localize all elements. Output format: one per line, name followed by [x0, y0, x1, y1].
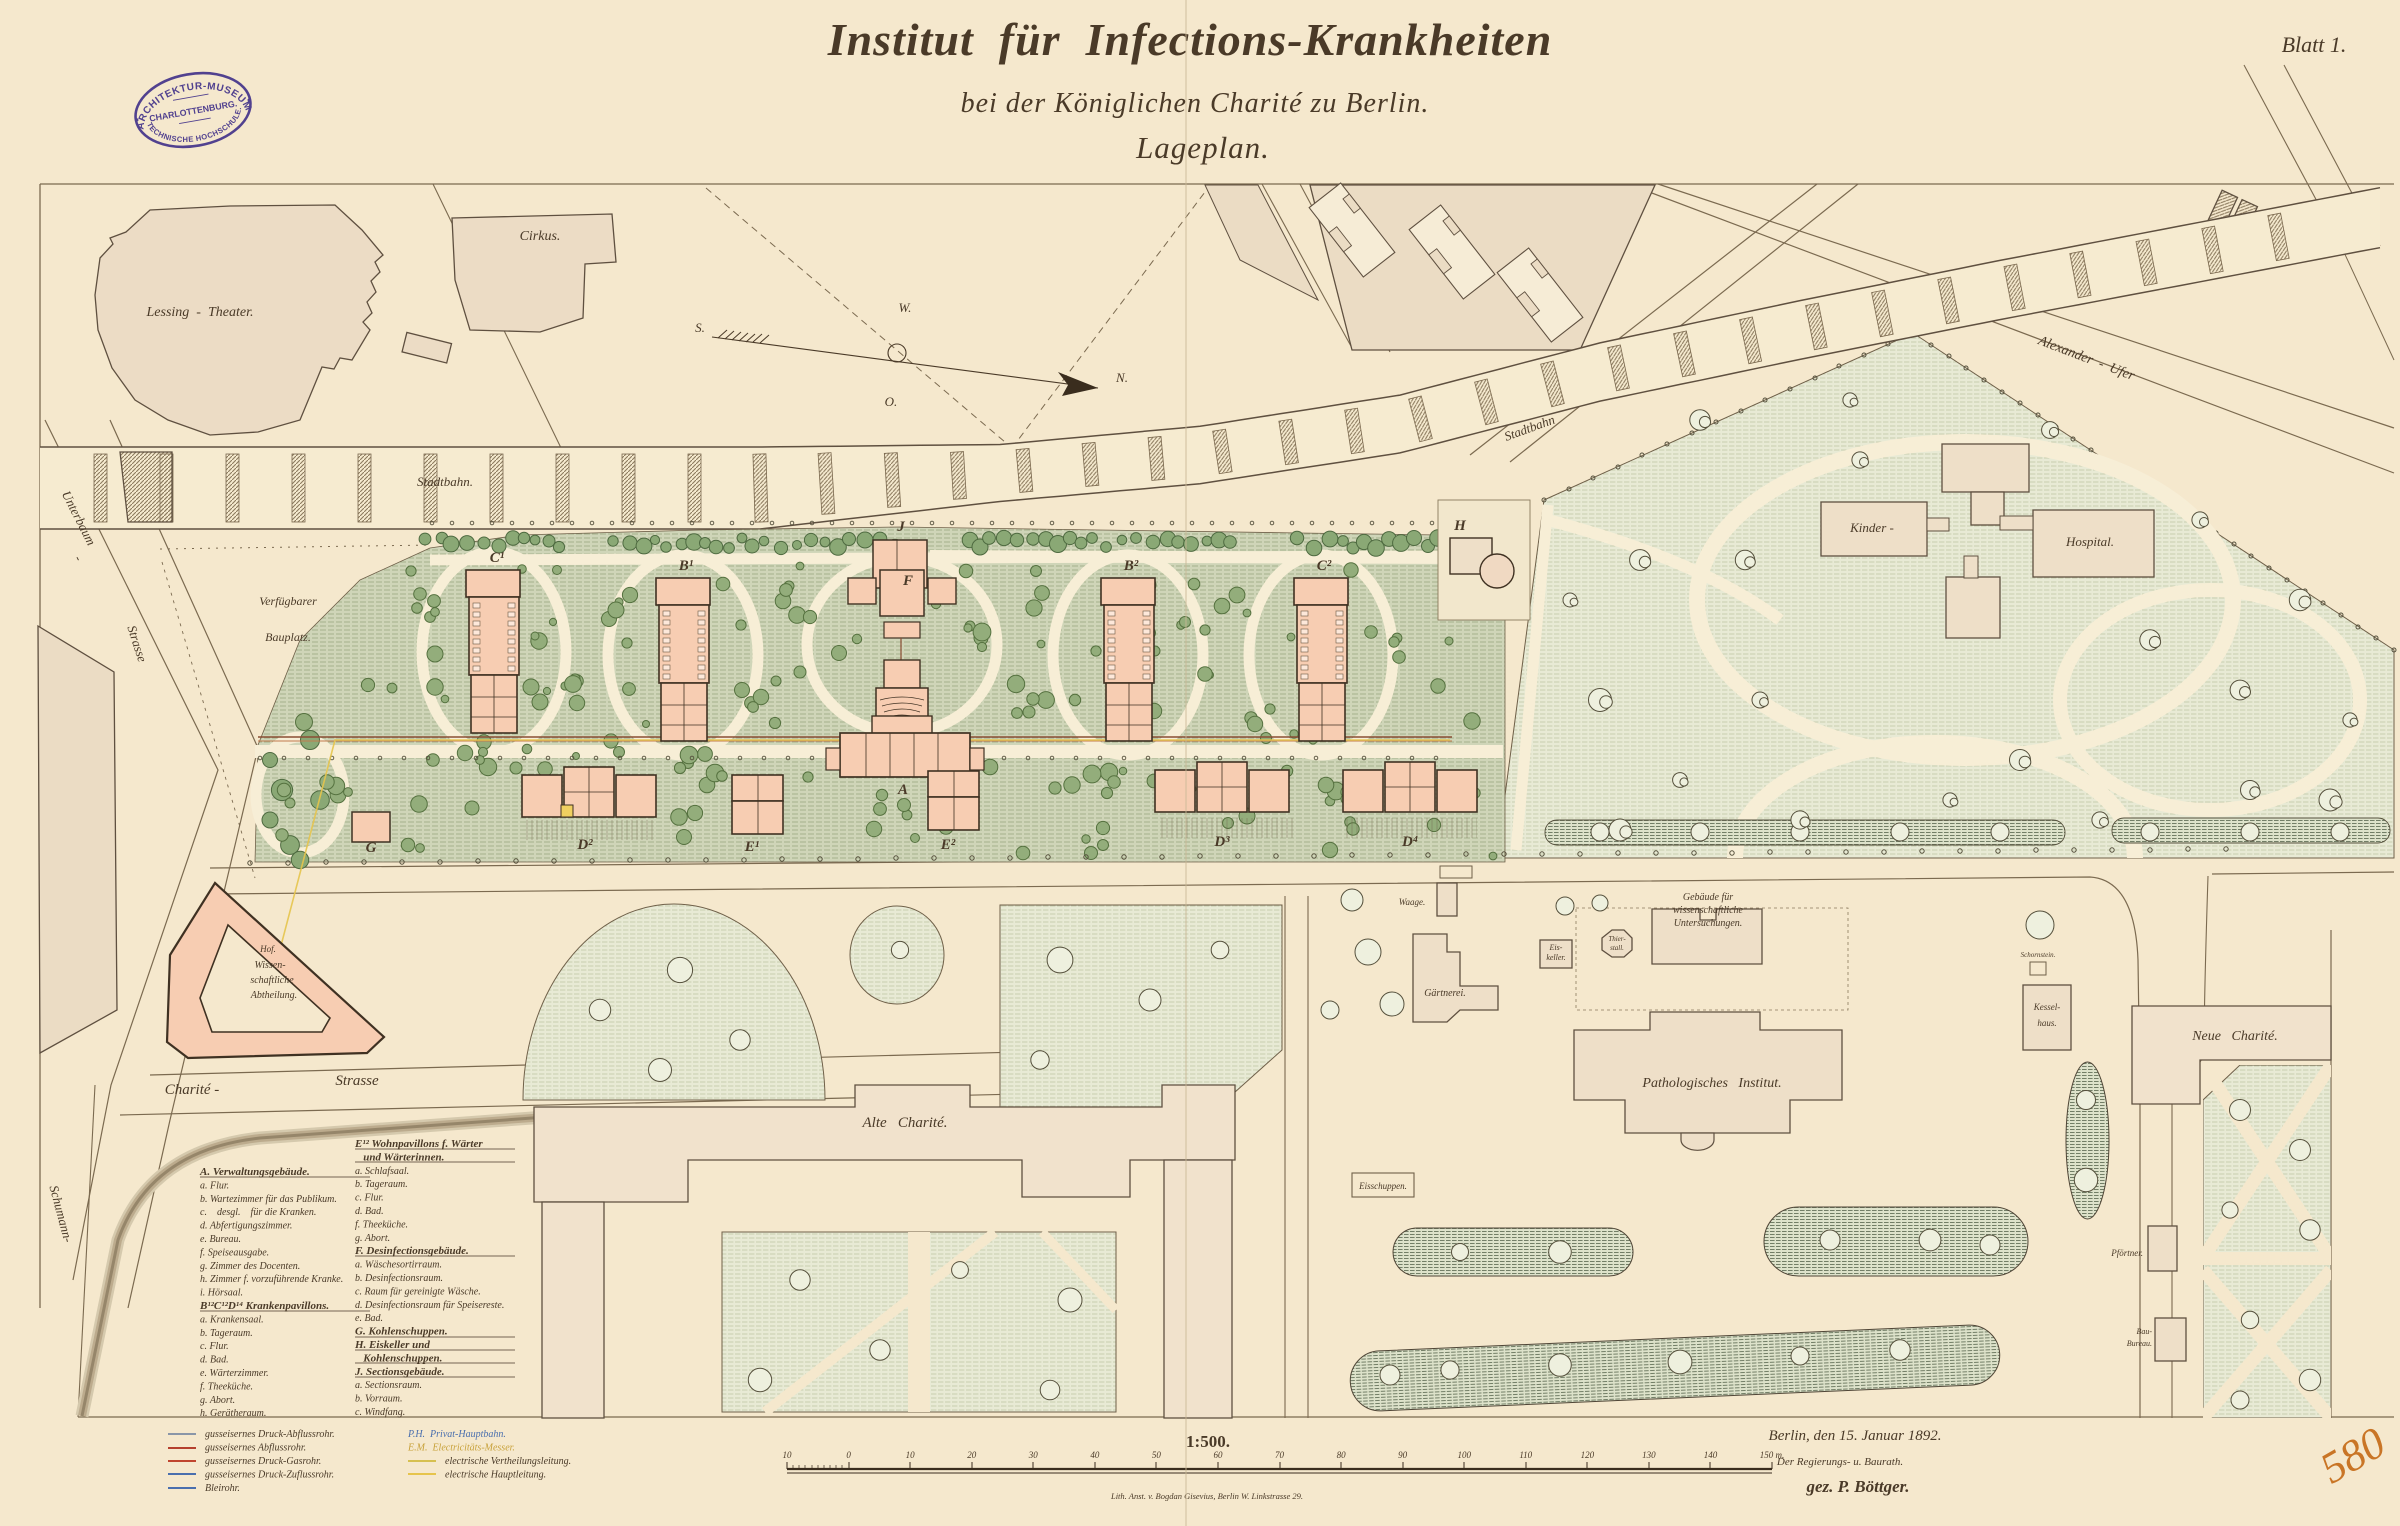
- svg-text:70: 70: [1275, 1450, 1285, 1460]
- svg-text:h. Gerätheraum.: h. Gerätheraum.: [200, 1408, 266, 1419]
- svg-text:30: 30: [1028, 1450, 1039, 1460]
- svg-text:gez. P. Böttger.: gez. P. Böttger.: [1805, 1477, 1909, 1496]
- svg-text:140: 140: [1704, 1450, 1718, 1460]
- svg-text:G. Kohlenschuppen.: G. Kohlenschuppen.: [355, 1326, 448, 1338]
- svg-text:Bureau.: Bureau.: [2127, 1339, 2152, 1348]
- svg-text:A. Verwaltungsgebäude.: A. Verwaltungsgebäude.: [199, 1166, 310, 1178]
- svg-text:Hospital.: Hospital.: [2065, 534, 2114, 549]
- svg-text:Cirkus.: Cirkus.: [520, 229, 561, 244]
- svg-text:C¹: C¹: [490, 550, 505, 566]
- svg-text:G: G: [366, 840, 377, 856]
- svg-text:Lageplan.: Lageplan.: [1135, 130, 1270, 165]
- svg-text:b. Wartezimmer für das Publiku: b. Wartezimmer für das Publikum.: [200, 1194, 337, 1205]
- svg-text:electrische Hauptleitung.: electrische Hauptleitung.: [445, 1470, 546, 1481]
- svg-text:Abtheilung.: Abtheilung.: [250, 990, 297, 1001]
- svg-text:wissenschaftliche: wissenschaftliche: [1673, 905, 1744, 916]
- svg-text:Thier-: Thier-: [1608, 935, 1626, 943]
- svg-text:c. Flur.: c. Flur.: [200, 1341, 229, 1352]
- svg-text:Verfügbarer: Verfügbarer: [259, 594, 317, 608]
- svg-text:electrische Vertheilungsleitun: electrische Vertheilungsleitung.: [445, 1456, 571, 1467]
- svg-text:Gärtnerei.: Gärtnerei.: [1424, 988, 1466, 999]
- svg-text:130: 130: [1642, 1450, 1656, 1460]
- svg-text:B²: B²: [1123, 558, 1139, 574]
- svg-text:B¹²C¹²D¹⁴ Krankenpavillons.: B¹²C¹²D¹⁴ Krankenpavillons.: [199, 1300, 329, 1312]
- svg-text:90: 90: [1398, 1450, 1408, 1460]
- svg-text:Kohlenschuppen.: Kohlenschuppen.: [355, 1352, 442, 1364]
- svg-text:D³: D³: [1213, 834, 1230, 850]
- svg-text:b. Tageraum.: b. Tageraum.: [200, 1328, 253, 1339]
- svg-text:Neue Charité.: Neue Charité.: [2191, 1029, 2278, 1044]
- svg-text:100: 100: [1457, 1450, 1471, 1460]
- svg-text:stall.: stall.: [1610, 944, 1624, 952]
- svg-text:schaftliche: schaftliche: [250, 975, 294, 986]
- svg-text:50: 50: [1152, 1450, 1162, 1460]
- svg-text:f. Speiseausgabe.: f. Speiseausgabe.: [200, 1247, 269, 1258]
- svg-text:d. Abfertigungszimmer.: d. Abfertigungszimmer.: [200, 1221, 292, 1232]
- svg-text:B¹: B¹: [678, 558, 694, 574]
- svg-text:e. Bureau.: e. Bureau.: [200, 1234, 241, 1245]
- svg-text:1:500.: 1:500.: [1186, 1432, 1230, 1451]
- svg-text:60: 60: [1213, 1450, 1223, 1460]
- svg-text:0: 0: [846, 1450, 851, 1460]
- svg-text:Bau-: Bau-: [2136, 1327, 2152, 1336]
- svg-text:keller.: keller.: [1546, 953, 1565, 962]
- svg-text:A: A: [897, 782, 908, 798]
- svg-text:Pathologisches Institut.: Pathologisches Institut.: [1641, 1076, 1781, 1091]
- svg-text:Kinder -: Kinder -: [1849, 520, 1894, 535]
- svg-text:a. Flur.: a. Flur.: [200, 1180, 229, 1191]
- svg-text:a. Wäschesortirraum.: a. Wäschesortirraum.: [355, 1260, 442, 1271]
- svg-text:Pförtner.: Pförtner.: [2110, 1248, 2143, 1258]
- svg-text:Gebäude für: Gebäude für: [1683, 892, 1733, 903]
- svg-text:Waage.: Waage.: [1399, 897, 1425, 907]
- svg-text:a. Schlafsaal.: a. Schlafsaal.: [355, 1166, 409, 1177]
- svg-text:Bauplatz.: Bauplatz.: [265, 630, 311, 644]
- svg-text:a. Sectionsraum.: a. Sectionsraum.: [355, 1380, 422, 1391]
- svg-text:g. Zimmer des Docenten.: g. Zimmer des Docenten.: [200, 1261, 300, 1272]
- svg-text:f. Theeküche.: f. Theeküche.: [355, 1219, 408, 1230]
- svg-text:bei der Königlichen Charité zu: bei der Königlichen Charité zu Berlin.: [961, 88, 1430, 119]
- svg-text:Eisschuppen.: Eisschuppen.: [1358, 1181, 1407, 1191]
- svg-text:c. Flur.: c. Flur.: [355, 1193, 384, 1204]
- svg-text:c. Raum für gereinigte Wäsche.: c. Raum für gereinigte Wäsche.: [355, 1286, 481, 1297]
- svg-text:Charité -: Charité -: [165, 1082, 220, 1098]
- svg-text:Alte Charité.: Alte Charité.: [862, 1115, 948, 1131]
- svg-text:F: F: [902, 573, 913, 589]
- svg-text:10: 10: [783, 1450, 793, 1460]
- svg-text:D⁴: D⁴: [1401, 834, 1418, 850]
- svg-text:Lessing - Theater.: Lessing - Theater.: [146, 305, 254, 320]
- svg-text:f. Theeküche.: f. Theeküche.: [200, 1381, 253, 1392]
- svg-text:E.M. Electricitäts-Messer.: E.M. Electricitäts-Messer.: [407, 1443, 515, 1454]
- svg-text:g. Abort.: g. Abort.: [355, 1233, 390, 1244]
- svg-text:20: 20: [967, 1450, 977, 1460]
- svg-text:Bleirohr.: Bleirohr.: [205, 1483, 240, 1494]
- svg-text:g. Abort.: g. Abort.: [200, 1395, 235, 1406]
- svg-text:gusseisernes Abflussrohr.: gusseisernes Abflussrohr.: [205, 1443, 306, 1454]
- svg-text:gusseisernes Druck-Abflussrohr: gusseisernes Druck-Abflussrohr.: [205, 1429, 335, 1440]
- svg-text:D²: D²: [576, 837, 593, 853]
- svg-text:W.: W.: [899, 300, 912, 315]
- svg-text:Untersuchungen.: Untersuchungen.: [1674, 918, 1743, 929]
- svg-text:Blatt 1.: Blatt 1.: [2282, 32, 2347, 57]
- svg-text:Schornstein.: Schornstein.: [2021, 951, 2056, 959]
- svg-text:Stadtbahn.: Stadtbahn.: [417, 474, 473, 489]
- svg-text:e. Bad.: e. Bad.: [355, 1313, 383, 1324]
- svg-text:Institut für Infections-Kran: Institut für Infections-Krankheiten: [827, 14, 1553, 65]
- svg-text:d. Bad.: d. Bad.: [355, 1206, 384, 1217]
- svg-text:Hof.: Hof.: [259, 944, 276, 954]
- svg-text:110: 110: [1519, 1450, 1532, 1460]
- svg-text:E¹² Wohnpavillons f. Wärter: E¹² Wohnpavillons f. Wärter: [354, 1138, 483, 1150]
- svg-text:haus.: haus.: [2037, 1018, 2056, 1028]
- svg-text:J. Sectionsgebäude.: J. Sectionsgebäude.: [354, 1366, 445, 1378]
- svg-text:N.: N.: [1115, 370, 1128, 385]
- svg-text:H: H: [1453, 518, 1467, 534]
- svg-text:d. Desinfectionsraum für Speis: d. Desinfectionsraum für Speisereste.: [355, 1300, 504, 1311]
- svg-text:80: 80: [1337, 1450, 1347, 1460]
- svg-text:Strasse: Strasse: [335, 1073, 379, 1089]
- svg-text:Kessel-: Kessel-: [2033, 1002, 2061, 1012]
- svg-text:10: 10: [906, 1450, 916, 1460]
- svg-text:c. Windfang.: c. Windfang.: [355, 1407, 405, 1418]
- svg-text:e. Wärterzimmer.: e. Wärterzimmer.: [200, 1368, 269, 1379]
- svg-text:F. Desinfectionsgebäude.: F. Desinfectionsgebäude.: [354, 1245, 469, 1257]
- svg-text:b. Vorraum.: b. Vorraum.: [355, 1394, 403, 1405]
- svg-text:P.H. Privat-Hauptbahn.: P.H. Privat-Hauptbahn.: [407, 1429, 506, 1440]
- svg-text:J: J: [896, 519, 905, 535]
- svg-text:d. Bad.: d. Bad.: [200, 1355, 229, 1366]
- svg-text:und Wärterinnen.: und Wärterinnen.: [355, 1151, 444, 1163]
- svg-text:i. Hörsaal.: i. Hörsaal.: [200, 1288, 243, 1299]
- svg-text:h. Zimmer f. vorzuführende Kra: h. Zimmer f. vorzuführende Kranke.: [200, 1274, 343, 1285]
- svg-text:b. Desinfectionsraum.: b. Desinfectionsraum.: [355, 1273, 443, 1284]
- svg-text:E¹: E¹: [744, 839, 760, 855]
- svg-text:Der Regierungs- u. Baurath.: Der Regierungs- u. Baurath.: [1776, 1456, 1903, 1468]
- svg-text:gusseisernes Druck-Gasrohr.: gusseisernes Druck-Gasrohr.: [205, 1456, 321, 1467]
- svg-text:Lith. Anst. v. Bogdan Gisevius: Lith. Anst. v. Bogdan Gisevius, Berlin W…: [1110, 1491, 1303, 1501]
- svg-text:c. desgl. für die Kranke: c. desgl. für die Kranken.: [200, 1207, 316, 1218]
- svg-text:E²: E²: [940, 837, 956, 853]
- svg-text:b. Tageraum.: b. Tageraum.: [355, 1179, 408, 1190]
- svg-text:gusseisernes Druck-Zuflussrohr: gusseisernes Druck-Zuflussrohr.: [205, 1470, 334, 1481]
- svg-text:Wissen-: Wissen-: [254, 960, 285, 971]
- svg-text:Berlin, den 15. Januar 1892.: Berlin, den 15. Januar 1892.: [1769, 1428, 1942, 1444]
- svg-text:Eis-: Eis-: [1549, 943, 1563, 952]
- svg-text:O.: O.: [885, 394, 898, 409]
- svg-text:a. Krankensaal.: a. Krankensaal.: [200, 1314, 264, 1325]
- svg-text:H. Eiskeller und: H. Eiskeller und: [354, 1339, 430, 1351]
- svg-text:40: 40: [1090, 1450, 1100, 1460]
- svg-text:S.: S.: [695, 320, 705, 335]
- svg-text:C²: C²: [1317, 558, 1332, 574]
- svg-text:120: 120: [1581, 1450, 1595, 1460]
